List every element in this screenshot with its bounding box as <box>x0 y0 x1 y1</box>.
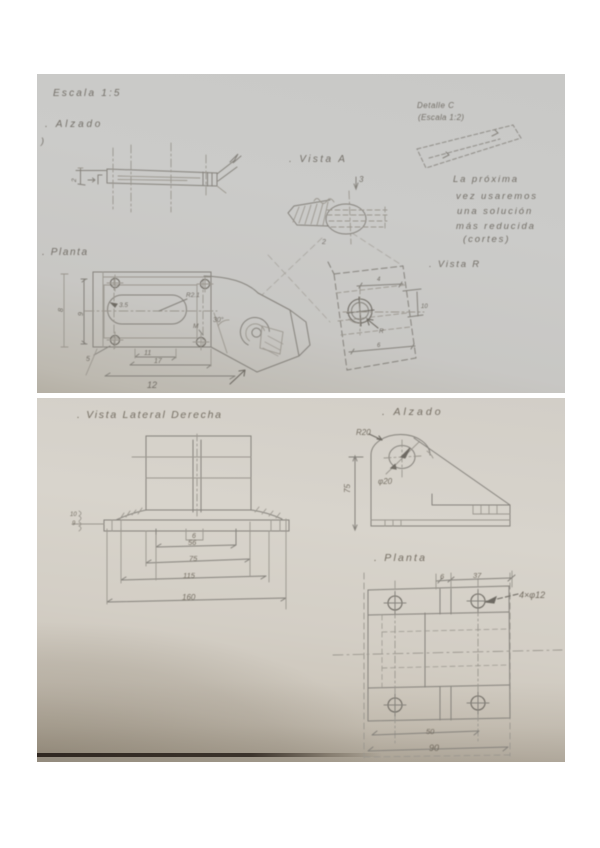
svg-text:más reducida: más reducida <box>456 221 536 232</box>
svg-text:(cortes): (cortes) <box>463 234 510 245</box>
svg-text:5: 5 <box>86 356 90 363</box>
svg-text:φ20: φ20 <box>378 477 393 486</box>
svg-text:. Vista A: . Vista A <box>289 154 347 165</box>
svg-text:4×φ12: 4×φ12 <box>519 590 545 600</box>
svg-text:160: 160 <box>182 593 196 602</box>
svg-text:6: 6 <box>440 572 445 581</box>
svg-text:30°: 30° <box>213 316 224 324</box>
svg-text:8: 8 <box>58 308 65 312</box>
svg-text:17: 17 <box>154 358 163 365</box>
svg-text:Escala 1:5: Escala 1:5 <box>53 88 122 99</box>
svg-text:): ) <box>40 136 44 146</box>
svg-text:R: R <box>379 328 384 335</box>
svg-text:. Planta: . Planta <box>374 552 427 564</box>
svg-text:115: 115 <box>183 571 196 580</box>
svg-text:Detalle C: Detalle C <box>417 101 454 110</box>
svg-text:. Alzado: . Alzado <box>382 406 444 418</box>
svg-text:3: 3 <box>359 175 364 184</box>
svg-text:una solución: una solución <box>457 206 533 217</box>
svg-text:6: 6 <box>377 343 381 349</box>
svg-text:2: 2 <box>71 178 78 183</box>
svg-text:9: 9 <box>78 312 85 316</box>
svg-text:. Vista Lateral Derecha: . Vista Lateral Derecha <box>77 409 223 421</box>
svg-text:2: 2 <box>321 239 326 246</box>
svg-text:. Vista R: . Vista R <box>429 259 481 270</box>
svg-text:(Escala 1:2): (Escala 1:2) <box>418 113 464 122</box>
svg-text:. Planta: . Planta <box>42 247 89 258</box>
svg-text:. Alzado: . Alzado <box>45 119 103 130</box>
svg-text:3.5: 3.5 <box>119 302 128 309</box>
svg-text:12: 12 <box>147 380 157 390</box>
svg-text:4: 4 <box>377 277 381 283</box>
svg-text:La próxima: La próxima <box>453 174 519 185</box>
svg-text:10: 10 <box>70 512 77 518</box>
svg-text:75: 75 <box>343 484 352 493</box>
svg-text:90: 90 <box>429 743 439 753</box>
svg-text:11: 11 <box>144 350 151 357</box>
svg-text:37: 37 <box>473 571 482 580</box>
svg-text:M: M <box>193 323 199 330</box>
svg-text:50: 50 <box>426 727 435 736</box>
svg-text:R2.1: R2.1 <box>186 292 200 299</box>
svg-text:56: 56 <box>188 538 197 547</box>
svg-text:10: 10 <box>421 304 428 310</box>
svg-text:75: 75 <box>189 554 198 563</box>
svg-text:vez usaremos: vez usaremos <box>456 191 538 202</box>
svg-text:R20: R20 <box>356 428 371 437</box>
